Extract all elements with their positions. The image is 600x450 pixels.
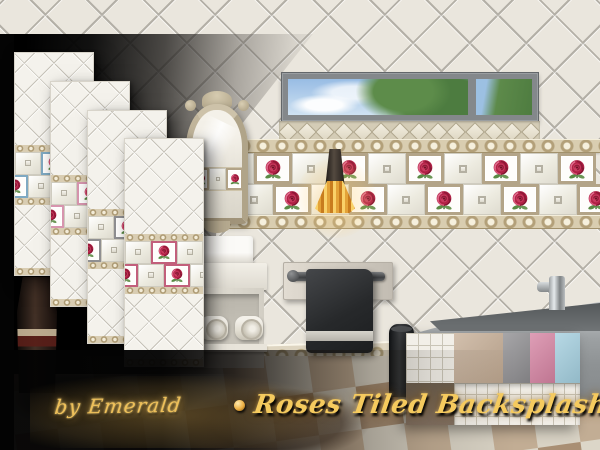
panel-rose-band	[125, 241, 203, 287]
title-row: Roses Tiled Backsplash	[234, 390, 600, 420]
zigzag-tile	[297, 122, 317, 140]
zigzag-tile	[484, 122, 504, 140]
rose-tile	[226, 168, 243, 190]
plain-tile	[138, 264, 164, 287]
zigzag-trim	[279, 121, 540, 140]
rose-tile	[425, 184, 463, 215]
rose-tile	[501, 184, 539, 215]
tile-center-square	[38, 183, 44, 189]
plain-tile	[51, 182, 77, 205]
zigzag-tile	[390, 122, 410, 140]
plain-tile	[444, 153, 482, 184]
plain-tile	[463, 184, 501, 215]
rose-tile	[558, 153, 596, 184]
scene: by Emerald Roses Tiled Backsplash	[0, 0, 600, 450]
window-pane-right	[476, 79, 532, 115]
tile-center-square	[459, 165, 467, 173]
bath-towel	[306, 269, 373, 353]
rose-icon	[125, 267, 133, 283]
panel-diamond-tiles	[125, 294, 203, 359]
rose-tile	[51, 205, 64, 228]
zigzag-tile	[428, 122, 448, 140]
rose-tile	[151, 241, 177, 264]
towel-stripe	[306, 331, 373, 341]
plain-tile	[387, 184, 425, 215]
swatch-white-tile	[406, 333, 454, 383]
panel-diamond-tiles	[125, 139, 203, 234]
tile-center-square	[554, 196, 562, 204]
tile-center-square	[216, 177, 220, 181]
rose-tile	[254, 153, 292, 184]
plain-tile	[368, 153, 406, 184]
rose-icon	[262, 158, 284, 180]
zigzag-tile	[372, 122, 392, 140]
zigzag-tile	[334, 122, 354, 140]
panel-scroll-trim	[125, 287, 203, 294]
tile-center-square	[25, 160, 31, 166]
faucet	[549, 276, 565, 310]
rose-tile-row	[125, 264, 203, 287]
zigzag-tile	[465, 122, 485, 140]
set-title: Roses Tiled Backsplash	[252, 390, 600, 420]
window-pane-left	[288, 79, 468, 115]
plain-tile	[177, 241, 203, 264]
rose-icon	[490, 158, 512, 180]
rose-icon	[585, 189, 600, 211]
swatch-gray	[503, 333, 530, 383]
rose-tile	[125, 264, 138, 287]
rose-tile	[406, 153, 444, 184]
tile-center-square	[478, 196, 486, 204]
rose-tile	[482, 153, 520, 184]
left-dark-edge	[0, 34, 14, 450]
plain-tile	[190, 264, 203, 287]
mirror-curl-left	[185, 100, 196, 111]
swatch-blue	[555, 333, 580, 383]
plain-tile	[209, 168, 226, 190]
rose-icon	[169, 267, 185, 283]
zigzag-tile	[279, 122, 298, 140]
tile-center-square	[250, 196, 258, 204]
mirror-curl-right	[238, 100, 249, 111]
rose-icon	[15, 178, 23, 194]
plain-tile	[15, 152, 41, 175]
tile-center-square	[187, 249, 193, 255]
plain-tile	[243, 168, 248, 190]
rose-tile-row	[125, 241, 203, 264]
gold-dot-left	[234, 400, 245, 411]
zigzag-tile	[409, 122, 429, 140]
rolled-towel	[200, 316, 228, 340]
tile-center-square	[135, 249, 141, 255]
zigzag-tile	[446, 122, 466, 140]
plain-tile	[539, 184, 577, 215]
tile-center-square	[74, 213, 80, 219]
rose-icon	[509, 189, 531, 211]
tile-center-square	[111, 247, 117, 253]
rose-icon	[88, 242, 96, 258]
tile-center-square	[383, 165, 391, 173]
panel-scroll-trim	[125, 359, 203, 366]
plain-tile	[125, 241, 151, 264]
tile-center-square	[61, 190, 67, 196]
zigzag-tile	[353, 122, 373, 140]
tile-center-square	[148, 272, 154, 278]
rose-icon	[566, 158, 588, 180]
rose-icon	[414, 158, 436, 180]
rose-tile	[577, 184, 600, 215]
swatch-pink	[530, 333, 555, 383]
zigzag-tile	[502, 122, 522, 140]
swatch-beige	[454, 333, 503, 383]
plain-tile	[88, 216, 114, 239]
rose-tile	[164, 264, 190, 287]
rose-icon	[229, 173, 241, 185]
tile-center-square	[200, 272, 203, 278]
rose-icon	[156, 244, 172, 260]
rose-tile	[88, 239, 101, 262]
tile-panel-red	[124, 138, 204, 367]
tile-center-square	[535, 165, 543, 173]
mirror-finial	[204, 221, 230, 233]
window	[281, 72, 539, 122]
tile-center-square	[402, 196, 410, 204]
swatch-row	[406, 333, 580, 383]
zigzag-tile	[521, 122, 540, 140]
rose-icon	[433, 189, 455, 211]
zigzag-tile	[315, 122, 335, 140]
rose-tile	[15, 175, 28, 198]
tile-center-square	[98, 224, 104, 230]
panel-scroll-trim	[125, 234, 203, 241]
rose-icon	[51, 208, 59, 224]
rolled-towel	[235, 316, 263, 340]
plain-tile	[520, 153, 558, 184]
